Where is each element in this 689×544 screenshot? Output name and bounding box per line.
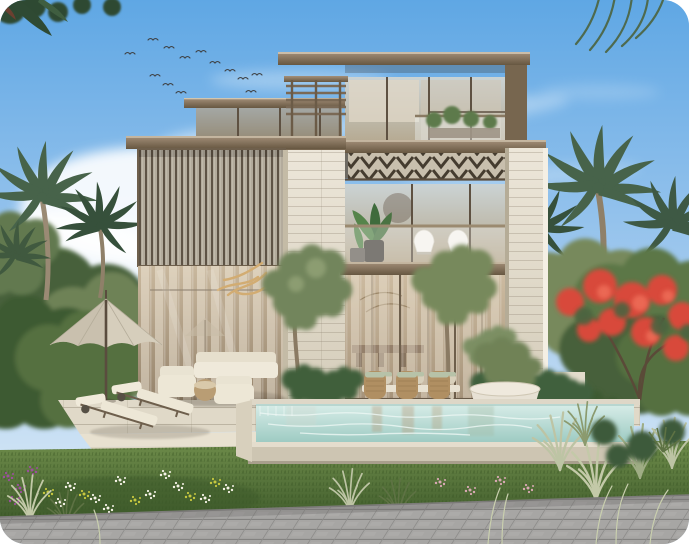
left-wing-roof-slab: [126, 136, 346, 149]
pool-front-coping: [248, 442, 640, 447]
side-table-top: [194, 381, 216, 389]
villa-render-photo: [0, 0, 689, 544]
top-roof-slab: [278, 52, 530, 65]
pool-left-end: [236, 400, 252, 462]
armchair: [158, 375, 196, 397]
top-floor-blinds: [349, 80, 419, 122]
render-canvas: [0, 0, 689, 544]
top-floor-bronze-pier: [505, 58, 527, 148]
louver-top-shadow: [138, 149, 285, 157]
roof-shadow: [345, 65, 505, 73]
top-balcony-planter-box: [428, 128, 500, 138]
planter-rim: [470, 382, 540, 396]
outdoor-sofa: [194, 362, 278, 378]
lounger-shadow: [90, 425, 210, 439]
louver-slats: [138, 149, 285, 266]
